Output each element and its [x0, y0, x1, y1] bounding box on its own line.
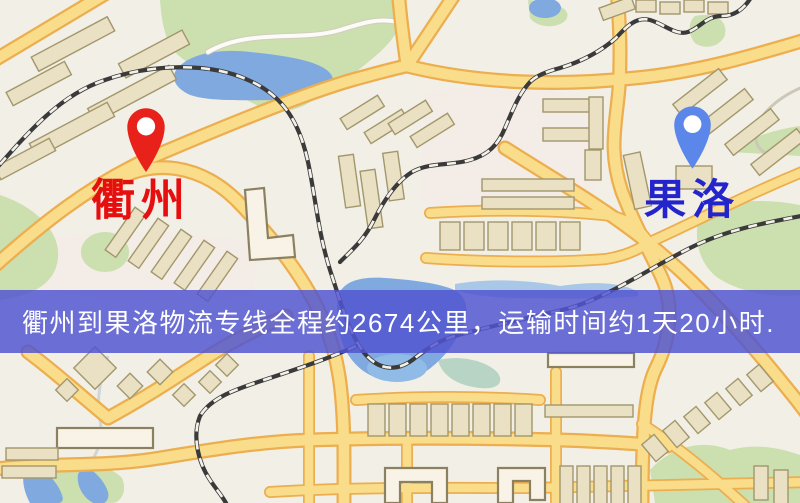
map-marker-icon: [124, 103, 168, 175]
origin-label: 衢州: [61, 179, 221, 223]
origin-pin: [124, 103, 168, 175]
destination-label: 果洛: [612, 180, 772, 222]
map-marker-icon: [671, 102, 714, 171]
destination-pin: [671, 102, 714, 171]
map-background: [0, 0, 800, 503]
route-banner-text: 衢州到果洛物流专线全程约2674公里，运输时间约1天20小时.: [0, 303, 775, 340]
logistics-route-map: 衢州 果洛 衢州到果洛物流专线全程约2674公里，运输时间约1天20小时.: [0, 0, 800, 503]
route-banner: 衢州到果洛物流专线全程约2674公里，运输时间约1天20小时.: [0, 290, 800, 353]
